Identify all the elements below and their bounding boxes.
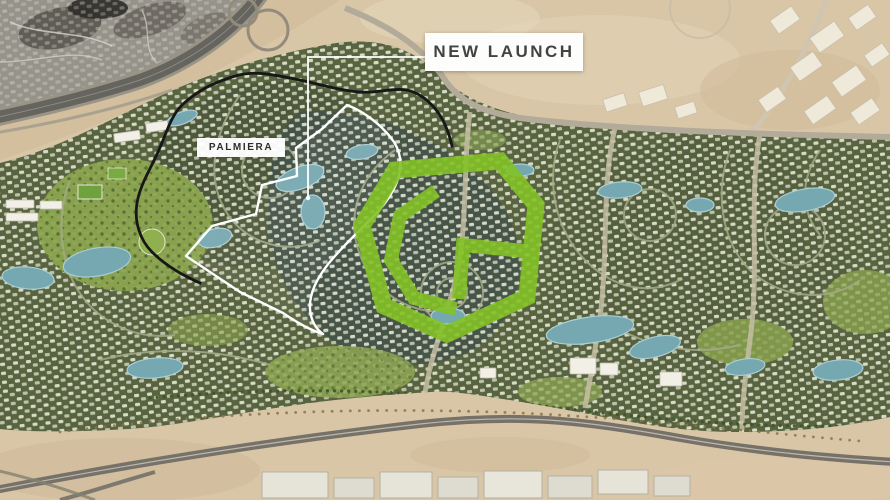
masterplan-map: NEW LAUNCH PALMIERA — [0, 0, 890, 500]
new-launch-label: NEW LAUNCH — [425, 33, 583, 71]
palmiera-label-text: PALMIERA — [209, 142, 273, 153]
map-canvas — [0, 0, 890, 500]
new-launch-label-text: NEW LAUNCH — [433, 42, 574, 62]
callout-endpoint — [306, 196, 310, 200]
palmiera-label: PALMIERA — [197, 138, 285, 157]
